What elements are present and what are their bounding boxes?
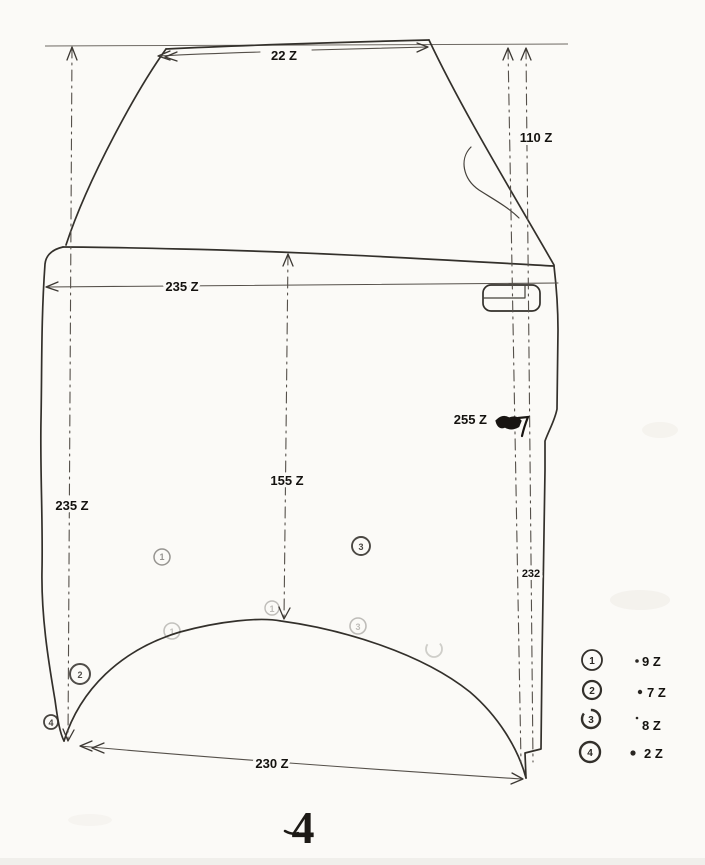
callout-points: 1 3 2 4 1 1 3 [44, 537, 442, 729]
window-right-slant [429, 40, 554, 265]
dim-top-width-label: 22 Z [271, 48, 297, 63]
legend-value-2: 7 Z [647, 685, 666, 700]
faint-callout-arc-right: 3 [350, 618, 366, 634]
figure-number: 4 [285, 802, 315, 853]
dimension-labels: 22 Z 110 Z 235 Z 235 Z 155 Z 255 Z 232 2… [55, 48, 552, 771]
legend: 1 9 Z 2 7 Z 3 8 Z 4 2 Z [580, 650, 666, 762]
dim-window-height-line [508, 48, 521, 762]
wheel-arch [64, 619, 526, 778]
svg-text:1: 1 [159, 552, 164, 562]
scan-artifacts [0, 422, 705, 865]
legend-value-3: 8 Z [642, 718, 661, 733]
callout-point-2: 2 [70, 664, 90, 684]
svg-text:3: 3 [358, 542, 363, 552]
legend-value-1: 9 Z [642, 654, 661, 669]
door-right-edge [525, 266, 558, 778]
faint-callout-arc-left: 1 [164, 623, 180, 639]
dim-left-height-label: 235 Z [55, 498, 88, 513]
ink-blot [497, 417, 528, 436]
callout-point-4: 4 [44, 715, 58, 729]
svg-text:1: 1 [169, 627, 174, 637]
dim-body-width-line [46, 283, 558, 287]
legend-dot-icon [635, 659, 639, 663]
faint-callout-apex: 1 [265, 601, 279, 615]
door-top-edge [63, 247, 554, 266]
window-left-slant [66, 49, 166, 245]
dim-body-width-label: 235 Z [165, 279, 198, 294]
legend-value-4: 2 Z [644, 746, 663, 761]
svg-text:1: 1 [269, 604, 274, 614]
svg-text:4: 4 [587, 748, 593, 759]
dim-bottom-width-line [80, 746, 522, 779]
dim-right-height-label: 232 [522, 568, 540, 580]
dim-window-height-label: 110 Z [520, 130, 553, 145]
dim-bottom-width-label: 230 Z [255, 756, 288, 771]
svg-text:4: 4 [292, 802, 315, 853]
svg-text:2: 2 [589, 686, 595, 697]
svg-text:3: 3 [355, 622, 360, 632]
left-extension-line [68, 47, 72, 740]
legend-dot-icon [636, 717, 639, 720]
svg-text:4: 4 [48, 718, 53, 728]
callout-point-3: 3 [352, 537, 370, 555]
legend-dot-icon [638, 690, 642, 694]
legend-row-3: 3 8 Z [582, 710, 661, 733]
dim-center-height-label: 155 Z [270, 473, 303, 488]
dim-right-height-line [526, 48, 533, 762]
legend-row-1: 1 9 Z [582, 650, 661, 670]
svg-text:1: 1 [589, 656, 595, 667]
door-handle [483, 285, 540, 311]
svg-text:2: 2 [77, 670, 82, 680]
door-outline [41, 40, 558, 778]
faint-callout-arc-far-right [426, 641, 442, 657]
arrow-left-icon [165, 52, 177, 61]
door-panel-sketch: 22 Z 110 Z 235 Z 235 Z 155 Z 255 Z 232 2… [0, 0, 705, 865]
dim-center-height-line [284, 254, 288, 619]
svg-text:3: 3 [588, 715, 594, 726]
callout-point-1: 1 [154, 549, 170, 565]
legend-row-2: 2 7 Z [583, 681, 666, 700]
door-left-edge [41, 247, 64, 741]
dim-handle-offset-label: 255 Z [454, 412, 487, 427]
legend-row-4: 4 2 Z [580, 742, 663, 762]
legend-dot-icon [630, 750, 635, 755]
